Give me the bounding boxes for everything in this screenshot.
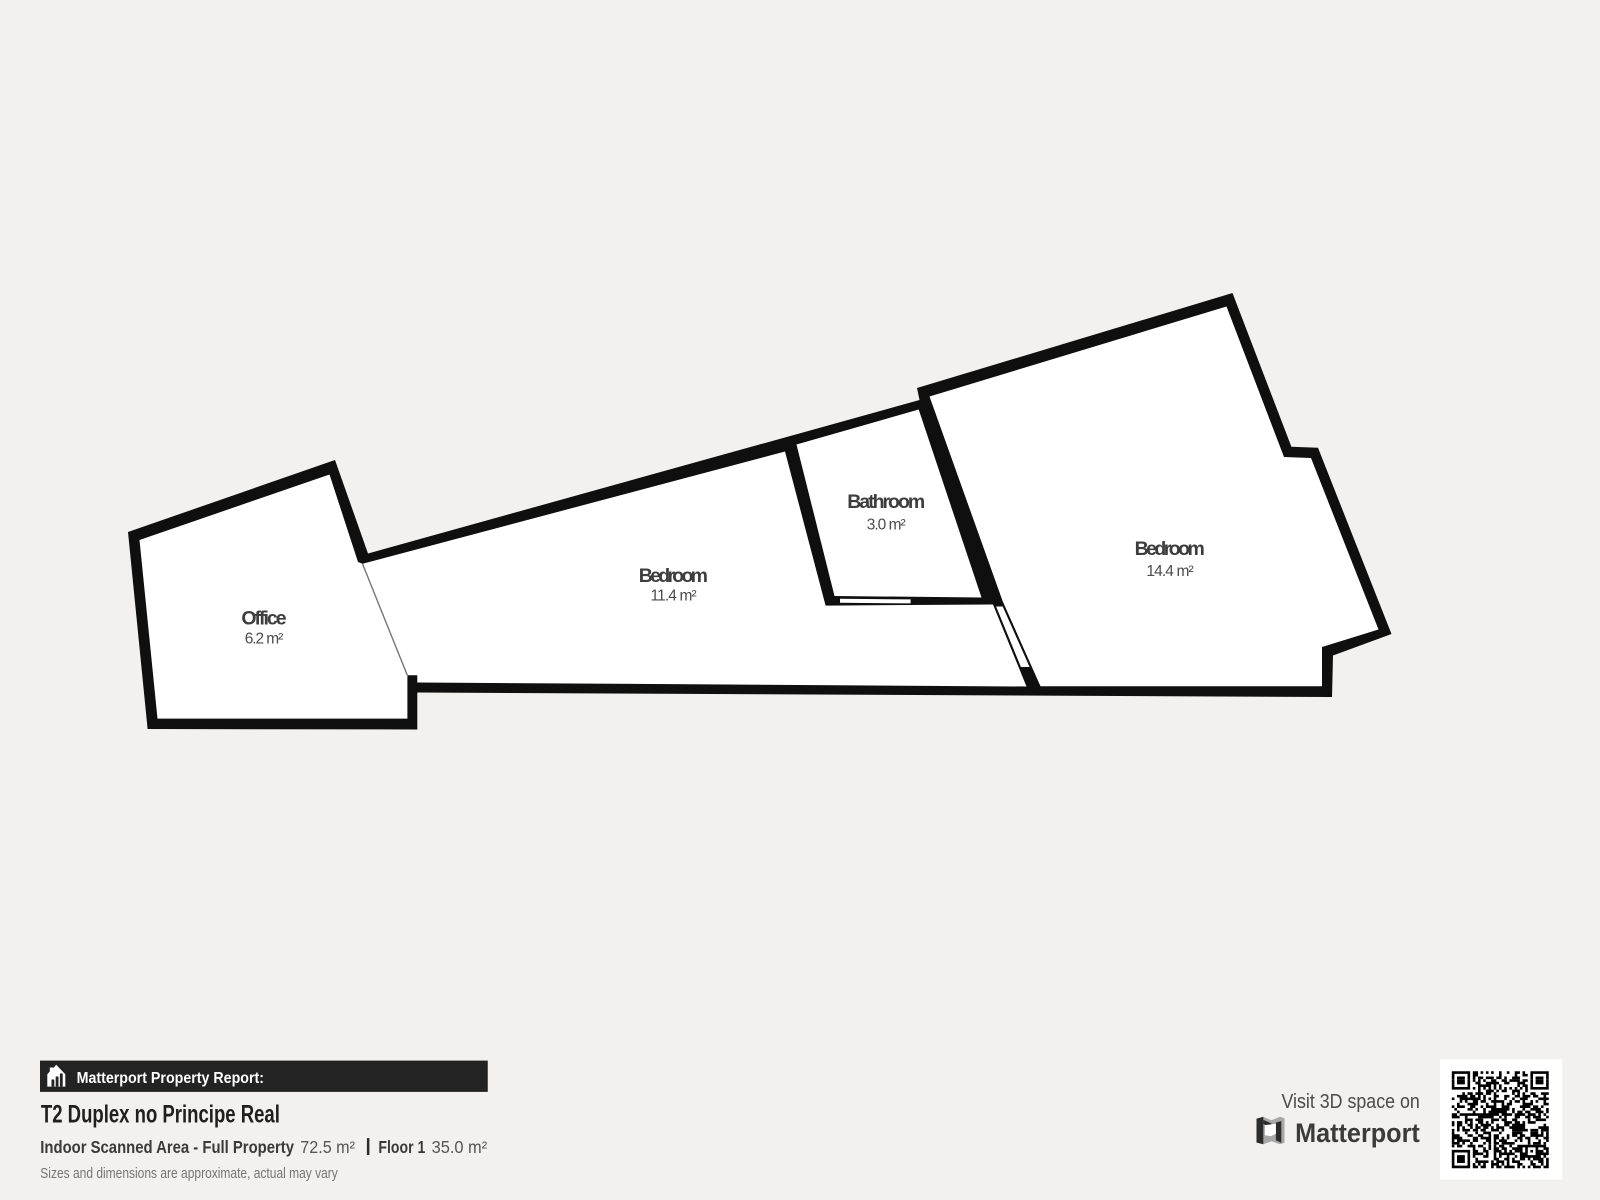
svg-text:Matterport Property Report:: Matterport Property Report: bbox=[77, 1070, 264, 1087]
svg-text:Bathroom: Bathroom bbox=[847, 491, 925, 513]
svg-text:Visit 3D space on: Visit 3D space on bbox=[1282, 1091, 1420, 1113]
svg-text:Office: Office bbox=[241, 608, 286, 630]
svg-text:Sizes and dimensions are appro: Sizes and dimensions are approximate, ac… bbox=[40, 1165, 338, 1182]
svg-text:35.0 m²: 35.0 m² bbox=[432, 1137, 488, 1157]
svg-text:Indoor Scanned Area - Full Pro: Indoor Scanned Area - Full Property bbox=[40, 1137, 294, 1157]
svg-text:Bedroom: Bedroom bbox=[1135, 538, 1205, 560]
svg-text:6.2 m²: 6.2 m² bbox=[245, 630, 284, 647]
svg-text:11.4 m²: 11.4 m² bbox=[651, 588, 697, 605]
svg-text:T2 Duplex no Principe Real: T2 Duplex no Principe Real bbox=[41, 1101, 280, 1129]
svg-text:3.0 m²: 3.0 m² bbox=[867, 517, 906, 534]
svg-text:Floor 1: Floor 1 bbox=[378, 1137, 425, 1157]
svg-text:14.4 m²: 14.4 m² bbox=[1146, 563, 1193, 580]
svg-text:72.5 m²: 72.5 m² bbox=[300, 1137, 355, 1157]
svg-text:Bedroom: Bedroom bbox=[639, 565, 708, 587]
svg-text:Matterport: Matterport bbox=[1295, 1118, 1420, 1148]
